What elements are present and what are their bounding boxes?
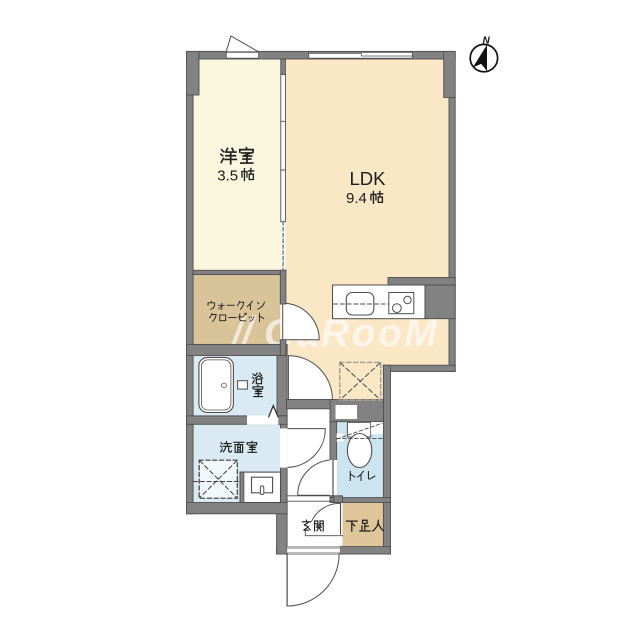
svg-text:3.5: 3.5 <box>217 167 238 184</box>
svg-text:LDK: LDK <box>350 168 387 189</box>
svg-text:9.4: 9.4 <box>346 190 367 207</box>
svg-text:N: N <box>483 36 491 47</box>
